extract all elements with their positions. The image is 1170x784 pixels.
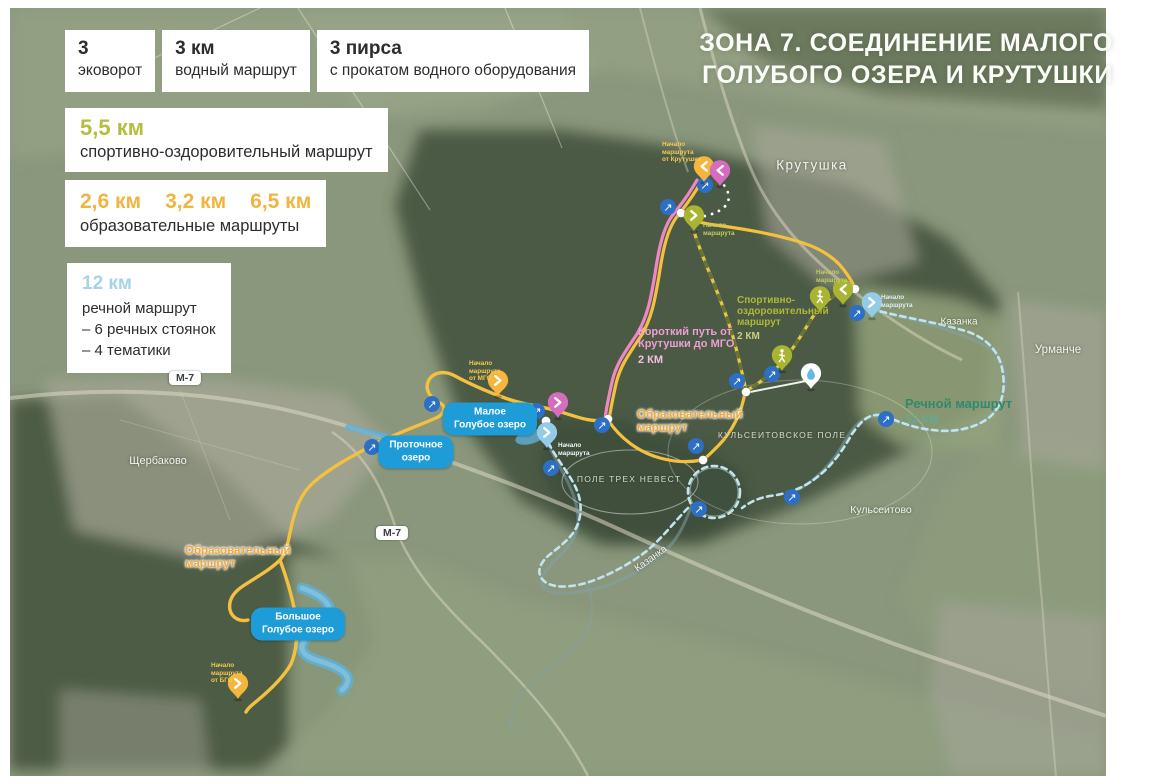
direction-marker: ↗ xyxy=(878,411,894,427)
svg-text:↗: ↗ xyxy=(427,399,436,411)
svg-text:↗: ↗ xyxy=(597,420,606,432)
direction-marker: ↗ xyxy=(364,439,380,455)
direction-marker: ↗ xyxy=(594,417,610,433)
svg-text:↗: ↗ xyxy=(663,202,672,214)
direction-marker: ↗ xyxy=(424,396,440,412)
svg-text:↗: ↗ xyxy=(691,441,700,453)
map-canvas: ↗ ↗ ↗ ↗ ↗ ↗ ↗ ↗ ↗ ↗ ↗ ↗ ↗ ↗ xyxy=(0,0,1170,784)
svg-text:↗: ↗ xyxy=(532,406,541,418)
svg-text:↗: ↗ xyxy=(787,492,796,504)
direction-marker: ↗ xyxy=(764,366,780,382)
svg-text:↗: ↗ xyxy=(367,442,376,454)
svg-text:↗: ↗ xyxy=(767,369,776,381)
svg-text:↗: ↗ xyxy=(881,414,890,426)
svg-text:↗: ↗ xyxy=(852,308,861,320)
svg-text:↗: ↗ xyxy=(694,504,703,516)
svg-text:↗: ↗ xyxy=(732,376,741,388)
direction-marker: ↗ xyxy=(691,501,707,517)
direction-marker: ↗ xyxy=(849,305,865,321)
svg-text:↗: ↗ xyxy=(546,463,555,475)
direction-marker: ↗ xyxy=(784,489,800,505)
direction-marker: ↗ xyxy=(660,199,676,215)
direction-marker: ↗ xyxy=(688,438,704,454)
direction-marker: ↗ xyxy=(729,373,745,389)
map-slide: ↗ ↗ ↗ ↗ ↗ ↗ ↗ ↗ ↗ ↗ ↗ ↗ ↗ ↗ xyxy=(0,0,1170,784)
direction-marker: ↗ xyxy=(543,460,559,476)
direction-marker: ↗ xyxy=(529,403,545,419)
